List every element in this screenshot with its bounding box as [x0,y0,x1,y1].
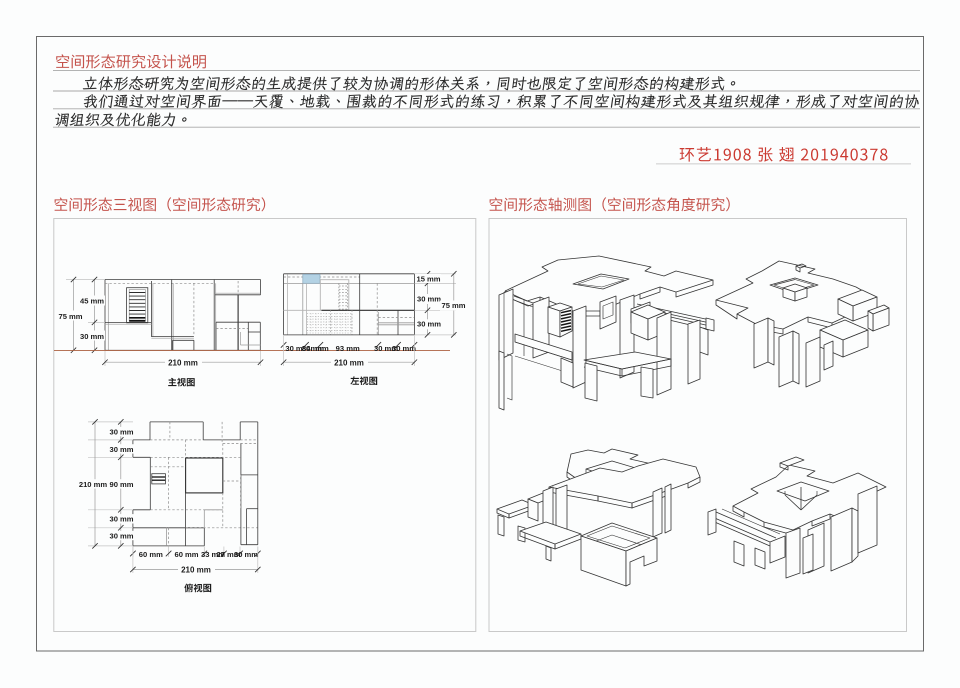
svg-text:45 mm: 45 mm [80,297,104,306]
svg-text:30 mm: 30 mm [417,320,441,329]
svg-text:30 mm: 30 mm [392,344,416,353]
svg-text:60 mm: 60 mm [139,550,163,559]
svg-text:75 mm: 75 mm [441,301,465,310]
svg-text:15 mm: 15 mm [416,275,440,284]
svg-text:93 mm: 93 mm [336,344,360,353]
svg-text:75 mm: 75 mm [58,312,82,321]
svg-text:30 mm: 30 mm [109,445,133,454]
svg-text:30 m: 30 m [285,344,303,353]
svg-text:210 mm: 210 mm [168,358,198,367]
svg-text:210 mm: 210 mm [334,358,364,367]
svg-text:210 mm: 210 mm [79,480,108,489]
svg-text:60 mm: 60 mm [174,550,198,559]
svg-text:30 mm: 30 mm [80,332,104,341]
svg-text:30 mm: 30 mm [109,428,133,437]
svg-text:30 mm: 30 mm [234,550,258,559]
svg-text:30 mm: 30 mm [109,515,133,524]
svg-text:30 mm: 30 mm [417,294,441,303]
svg-text:mm: mm [315,344,329,353]
svg-text:30 mm: 30 mm [109,531,133,540]
svg-text:90 mm: 90 mm [109,480,133,489]
svg-text:210 mm: 210 mm [181,566,211,575]
